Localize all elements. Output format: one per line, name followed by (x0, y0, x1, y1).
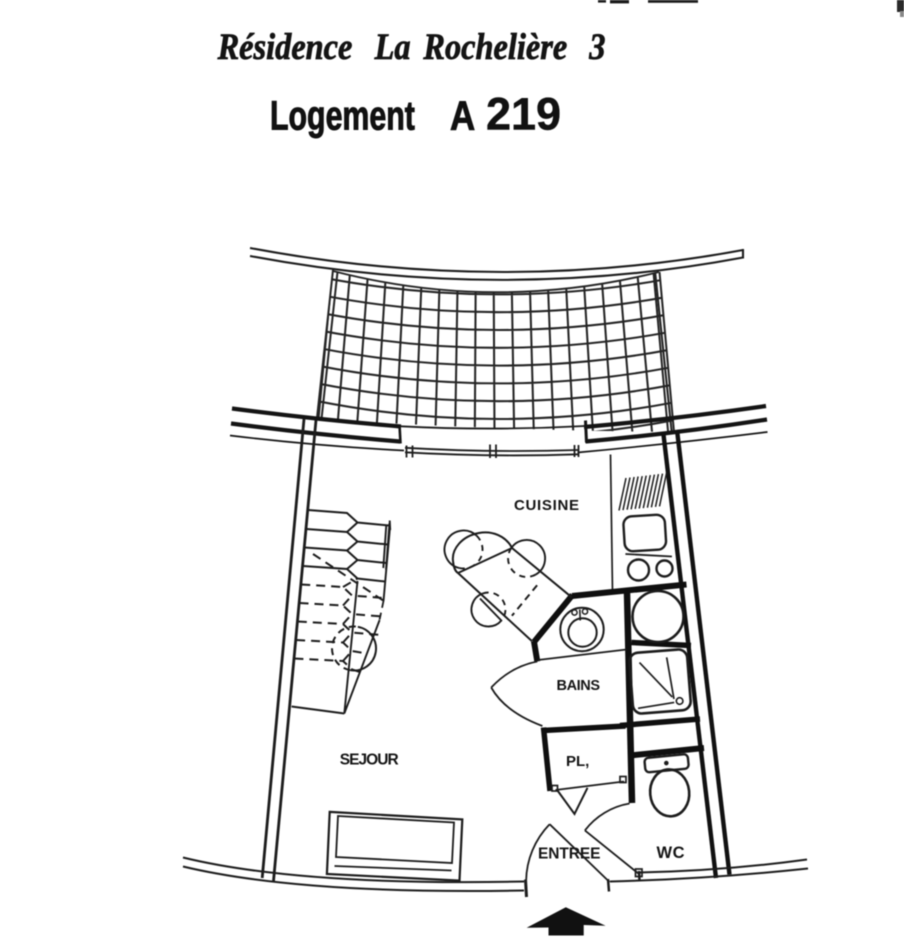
svg-text:CUISINE: CUISINE (514, 497, 579, 514)
svg-text:Logement: Logement (270, 92, 415, 139)
svg-text:BAINS: BAINS (557, 678, 601, 694)
svg-text:WC: WC (657, 844, 685, 862)
svg-text:PL,: PL, (566, 753, 589, 770)
svg-text:219: 219 (486, 89, 561, 140)
svg-text:RésidenceLaRochelière3: RésidenceLaRochelière3 (217, 26, 606, 68)
svg-text:SEJOUR: SEJOUR (340, 752, 399, 769)
svg-text:ENTREE: ENTREE (538, 846, 601, 863)
svg-text:A: A (450, 94, 475, 139)
